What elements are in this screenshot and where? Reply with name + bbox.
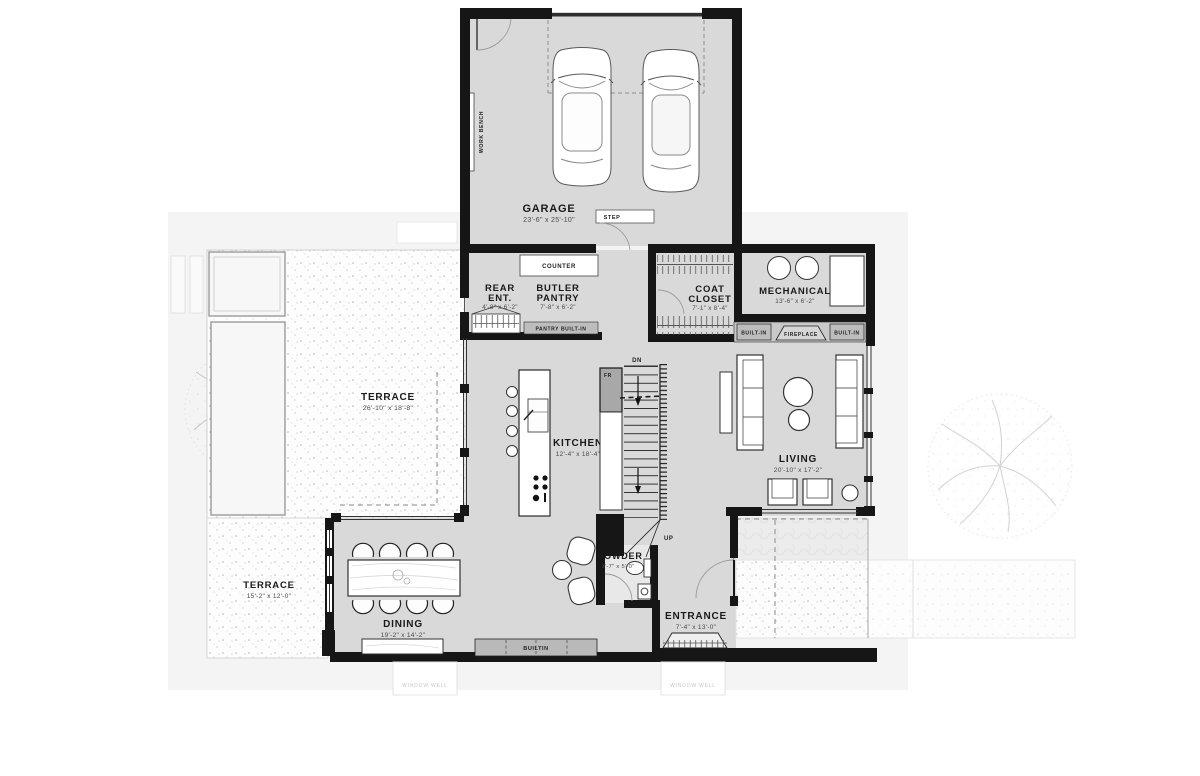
floor-plan-page: TERRACE 26'-10" x 18'-8" TERRACE 15'-2" … xyxy=(0,0,1200,776)
tree-planter-box xyxy=(211,322,285,515)
counter-label: COUNTER xyxy=(542,264,576,270)
stair-rail xyxy=(660,364,667,520)
fireplace-wall: BUILT-IN FIREPLACE BUILT-IN xyxy=(734,322,866,342)
terrace-small: TERRACE 15'-2" x 12'-0" xyxy=(207,518,333,658)
kitchen-dims: 12'-4" x 18'-4" xyxy=(556,451,601,458)
car-2 xyxy=(641,50,701,193)
side-table xyxy=(842,485,858,501)
terrace-small-dims: 15'-2" x 12'-0" xyxy=(247,593,292,600)
coffee-table-large xyxy=(784,378,813,407)
sofa-right xyxy=(836,355,863,448)
side-planter-1 xyxy=(171,256,185,313)
dining-label: DINING xyxy=(383,619,423,630)
mechanical-label: MECHANICAL xyxy=(759,286,831,297)
butler-pantry-label-2: PANTRY xyxy=(537,293,580,304)
living-label: LIVING xyxy=(779,454,817,465)
terrace-main: TERRACE 26'-10" x 18'-8" xyxy=(207,250,465,518)
garage-dims: 23'-6" x 25'-10" xyxy=(523,217,575,224)
right-tree xyxy=(928,394,1072,538)
closet-rod-bottom xyxy=(657,316,733,335)
powder-dims: 3'-7" x 5'-0" xyxy=(601,564,634,570)
mech-equipment-1 xyxy=(768,257,791,280)
sofa-left xyxy=(737,355,763,450)
dn-label: DN xyxy=(632,358,642,364)
mechanical-dims: 13'-6" x 6'-2" xyxy=(775,298,814,305)
terrace-main-dims: 26'-10" x 18'-8" xyxy=(363,405,414,412)
butler-pantry-dims: 7'-8" x 6'-2" xyxy=(540,304,576,311)
stair-treads xyxy=(624,366,658,518)
side-planter-2 xyxy=(190,256,203,313)
fridge-label: FR xyxy=(604,373,612,379)
right-walkway xyxy=(868,560,1075,638)
closet-rod-top xyxy=(657,255,733,274)
powder-label: POWDER xyxy=(597,551,642,561)
console-table xyxy=(720,372,732,433)
living-dims: 20'-10" x 17'-2" xyxy=(774,467,823,474)
coffee-table-small xyxy=(789,410,810,431)
coat-closet-dims: 7'-1" x 8'-4" xyxy=(692,305,728,312)
mech-equipment-2 xyxy=(796,257,819,280)
pantry-built-in-label: PANTRY BUILT-IN xyxy=(535,327,586,333)
work-bench-label: WORK BENCH xyxy=(479,111,485,153)
kitchen-sink xyxy=(528,399,548,432)
terrace-main-label: TERRACE xyxy=(361,392,415,403)
armchair-left xyxy=(768,479,797,505)
dining-dims: 19'-2" x 14'-2" xyxy=(381,632,426,639)
builtin-label: BUILTIN xyxy=(523,646,548,652)
car-1 xyxy=(551,48,613,187)
kitchen-label: KITCHEN xyxy=(553,438,603,449)
up-label: UP xyxy=(664,536,674,542)
entry-terrace xyxy=(736,518,868,638)
skylight-vent xyxy=(397,222,457,243)
entry-bench-closet xyxy=(663,633,727,648)
window-well-left-label: WINDOW WELL xyxy=(402,683,448,689)
garage-label: GARAGE xyxy=(522,203,575,215)
armchair-right xyxy=(803,479,832,505)
built-in-right-label: BUILT-IN xyxy=(834,331,860,337)
entrance-label: ENTRANCE xyxy=(665,611,727,622)
terrace-planter-box xyxy=(209,252,285,316)
floor-plan-drawing: TERRACE 26'-10" x 18'-8" TERRACE 15'-2" … xyxy=(0,0,1200,776)
powder-sink xyxy=(638,584,651,599)
terrace-small-label: TERRACE xyxy=(243,580,295,591)
entrance-dims: 7'-4" x 13'-0" xyxy=(676,624,717,631)
fireplace-label: FIREPLACE xyxy=(784,332,818,338)
window-well-left xyxy=(393,662,457,695)
window-well-right-label: WINDOW WELL xyxy=(670,683,716,689)
coat-closet-label-2: CLOSET xyxy=(688,294,731,305)
tall-cabinet xyxy=(600,412,622,510)
south-builtin: BUILTIN xyxy=(475,639,597,656)
mech-tank xyxy=(830,256,864,306)
nook-table xyxy=(553,561,572,580)
built-in-left-label: BUILT-IN xyxy=(741,331,767,337)
garage-door-panel xyxy=(552,13,702,17)
window-well-right xyxy=(661,662,725,695)
step-label: STEP xyxy=(604,215,621,221)
rear-ent-label-2: ENT. xyxy=(488,293,512,304)
